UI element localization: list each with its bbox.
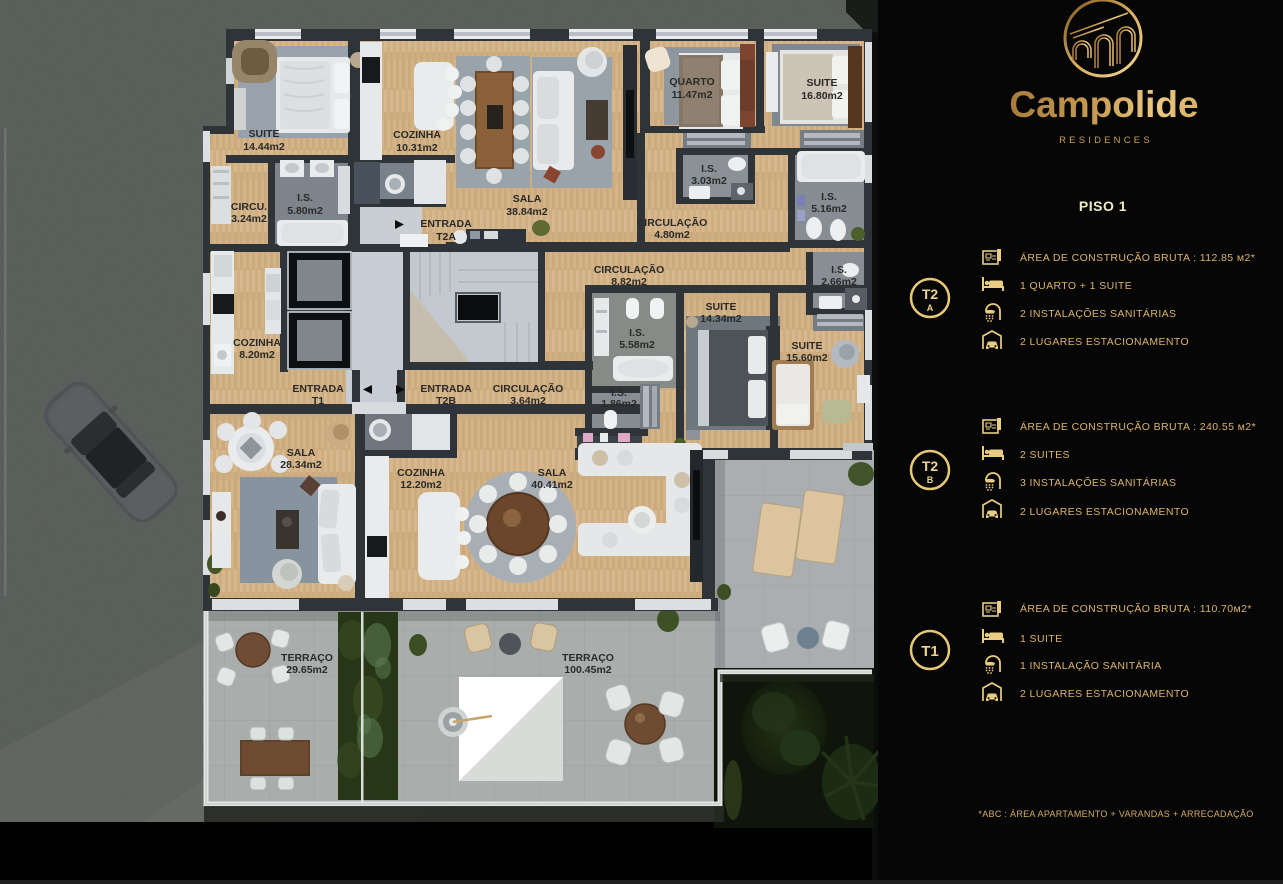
svg-text:ENTRADA: ENTRADA — [420, 383, 472, 395]
svg-text:SALA: SALA — [287, 447, 316, 459]
svg-text:ENTRADA: ENTRADA — [420, 218, 472, 230]
svg-text:ÁREA DE CONSTRUÇÃO BRUTA : 11: ÁREA DE CONSTRUÇÃO BRUTA : 112.85 м2* — [1020, 251, 1255, 264]
svg-text:COZINHA: COZINHA — [233, 337, 281, 349]
svg-text:5.80m2: 5.80m2 — [287, 205, 323, 217]
svg-text:COZINHA: COZINHA — [393, 129, 441, 141]
svg-text:CIRCULAÇÃO: CIRCULAÇÃO — [637, 216, 708, 229]
svg-text:10.31m2: 10.31m2 — [396, 142, 438, 154]
svg-text:1 QUARTO + 1 SUITE: 1 QUARTO + 1 SUITE — [1020, 280, 1132, 292]
svg-text:TERRAÇO: TERRAÇO — [281, 652, 333, 664]
svg-text:2 LUGARES ESTACIONAMENTO: 2 LUGARES ESTACIONAMENTO — [1020, 336, 1189, 348]
svg-text:12.20m2: 12.20m2 — [400, 479, 442, 491]
svg-text:SALA: SALA — [538, 467, 567, 479]
svg-text:2.66m2: 2.66m2 — [821, 276, 857, 288]
svg-text:*ABC : ÁREA APARTAMENTO + VAR: *ABC : ÁREA APARTAMENTO + VARANDAS + ARR… — [978, 809, 1253, 819]
svg-text:I.S.: I.S. — [701, 163, 717, 175]
svg-text:11.47m2: 11.47m2 — [672, 89, 713, 101]
svg-text:CIRCULAÇÃO: CIRCULAÇÃO — [493, 382, 564, 395]
svg-text:SUITE: SUITE — [706, 301, 737, 313]
svg-text:29.65m2: 29.65m2 — [286, 664, 328, 676]
svg-text:T1: T1 — [921, 643, 939, 660]
svg-text:I.S.: I.S. — [831, 264, 847, 276]
svg-text:3.24m2: 3.24m2 — [231, 213, 267, 225]
svg-text:1.86m2: 1.86m2 — [601, 398, 637, 410]
svg-text:CIRCULAÇÃO: CIRCULAÇÃO — [594, 263, 665, 276]
svg-text:SUITE: SUITE — [249, 128, 280, 140]
svg-text:T2: T2 — [922, 286, 939, 302]
svg-text:16.80m2: 16.80m2 — [801, 90, 843, 102]
svg-text:I.S.: I.S. — [629, 327, 645, 339]
svg-text:SALA: SALA — [513, 193, 542, 205]
svg-text:ÁREA DE CONSTRUÇÃO BRUTA : 11: ÁREA DE CONSTRUÇÃO BRUTA : 110.70м2* — [1020, 602, 1252, 615]
svg-text:4.80m2: 4.80m2 — [654, 229, 690, 241]
svg-text:15.60m2: 15.60m2 — [786, 352, 828, 364]
svg-text:14.44m2: 14.44m2 — [243, 141, 285, 153]
svg-text:SUITE: SUITE — [807, 77, 838, 89]
svg-text:ENTRADA: ENTRADA — [292, 383, 344, 395]
svg-text:2 LUGARES ESTACIONAMENTO: 2 LUGARES ESTACIONAMENTO — [1020, 688, 1189, 700]
svg-text:A: A — [927, 303, 934, 313]
svg-text:1 INSTALAÇÃO SANITÁRIA: 1 INSTALAÇÃO SANITÁRIA — [1020, 659, 1162, 672]
svg-text:SUITE: SUITE — [792, 340, 823, 352]
svg-text:B: B — [927, 475, 934, 485]
svg-text:28.34m2: 28.34m2 — [280, 459, 322, 471]
svg-text:8.20m2: 8.20m2 — [239, 349, 275, 361]
svg-text:40.41m2: 40.41m2 — [531, 479, 573, 491]
svg-text:38.84m2: 38.84m2 — [506, 206, 548, 218]
svg-text:CIRCU.: CIRCU. — [231, 201, 267, 213]
svg-text:8.82m2: 8.82m2 — [611, 276, 647, 288]
svg-text:RESIDENCES: RESIDENCES — [1059, 135, 1153, 146]
svg-text:3.03m2: 3.03m2 — [691, 175, 727, 187]
svg-text:3 INSTALAÇÕES SANITÁRIAS: 3 INSTALAÇÕES SANITÁRIAS — [1020, 476, 1176, 489]
svg-text:1 SUITE: 1 SUITE — [1020, 633, 1062, 645]
svg-text:I.S.: I.S. — [297, 192, 313, 204]
svg-text:5.16m2: 5.16m2 — [811, 203, 847, 215]
svg-text:14.34m2: 14.34m2 — [700, 313, 742, 325]
svg-text:100.45m2: 100.45m2 — [564, 664, 611, 676]
svg-text:Campolide: Campolide — [1009, 84, 1198, 125]
svg-text:COZINHA: COZINHA — [397, 467, 445, 479]
svg-text:T2A: T2A — [436, 231, 456, 243]
svg-text:I.S.: I.S. — [821, 191, 837, 203]
svg-text:T1: T1 — [312, 395, 324, 407]
svg-text:T2: T2 — [922, 458, 939, 474]
svg-text:QUARTO: QUARTO — [669, 76, 714, 88]
svg-text:3.64m2: 3.64m2 — [510, 395, 546, 407]
svg-text:5.58m2: 5.58m2 — [619, 339, 655, 351]
svg-text:T2B: T2B — [436, 395, 456, 407]
svg-text:TERRAÇO: TERRAÇO — [562, 652, 614, 664]
svg-text:2 INSTALAÇÕES SANITÁRIAS: 2 INSTALAÇÕES SANITÁRIAS — [1020, 307, 1176, 320]
svg-text:2 SUITES: 2 SUITES — [1020, 449, 1070, 461]
svg-text:ÁREA DE CONSTRUÇÃO BRUTA : 24: ÁREA DE CONSTRUÇÃO BRUTA : 240.55 м2* — [1020, 420, 1256, 433]
svg-text:2 LUGARES ESTACIONAMENTO: 2 LUGARES ESTACIONAMENTO — [1020, 506, 1189, 518]
svg-text:PISO 1: PISO 1 — [1079, 198, 1127, 214]
